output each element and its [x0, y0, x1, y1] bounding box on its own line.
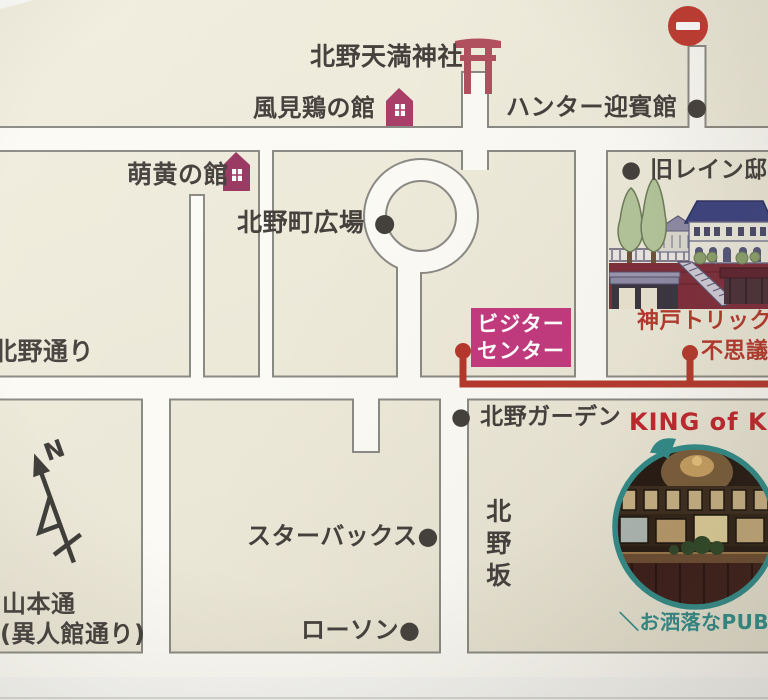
label-starbucks: スターバックス● — [247, 523, 439, 551]
label-kitano-garden: ● 北野ガーデン — [451, 404, 621, 430]
north-arrow-icon: N — [10, 434, 102, 570]
label-yamamoto-street-line2: (異人館通り) — [0, 621, 145, 649]
house-icon-weathercock — [386, 88, 413, 126]
label-kitano-street: 北野通り — [0, 338, 94, 367]
label-hunter-guest-house: ハンター迎賓館 ● — [506, 94, 708, 122]
route-marker-trick-art — [682, 345, 698, 361]
paper-corner — [0, 0, 34, 9]
compass-north-label: N — [40, 434, 68, 467]
label-king-of-kings: KING of KING — [629, 409, 768, 437]
label-yamamoto-street-line1: 山本通 — [2, 591, 76, 619]
visitor-center-line1: ビジター — [477, 311, 565, 338]
label-kitanozaka: 北野坂 — [482, 498, 511, 594]
visitor-center-badge: ビジター センター — [471, 308, 571, 367]
kitano-tourist-map: N — [0, 0, 768, 700]
label-former-rhine-house: ● 旧レイン邸 — [621, 157, 768, 183]
tree-icons — [618, 178, 666, 252]
visitor-center-line2: センター — [477, 338, 565, 365]
route-marker-visitor-center — [455, 343, 471, 359]
label-kitano-plaza: 北野町広場 ● — [237, 209, 396, 238]
label-trick-art-line2: 不思議 — [701, 339, 768, 364]
pub-photo — [612, 438, 768, 612]
no-entry-sign-icon — [668, 6, 708, 46]
label-weathercock-house: 風見鶏の館 — [253, 95, 376, 123]
label-moegi-house: 萌黄の館 — [127, 161, 229, 190]
label-lawson: ローソン● — [301, 617, 420, 645]
label-kitano-tenman-shrine: 北野天満神社 — [310, 43, 463, 72]
label-trick-art-line1: 神戸トリック — [637, 309, 768, 334]
label-pub-caption: ＼お洒落なPUB／ — [619, 611, 768, 634]
trick-art-museum-illustration — [606, 178, 768, 312]
paper-bottom-edge — [0, 677, 768, 700]
